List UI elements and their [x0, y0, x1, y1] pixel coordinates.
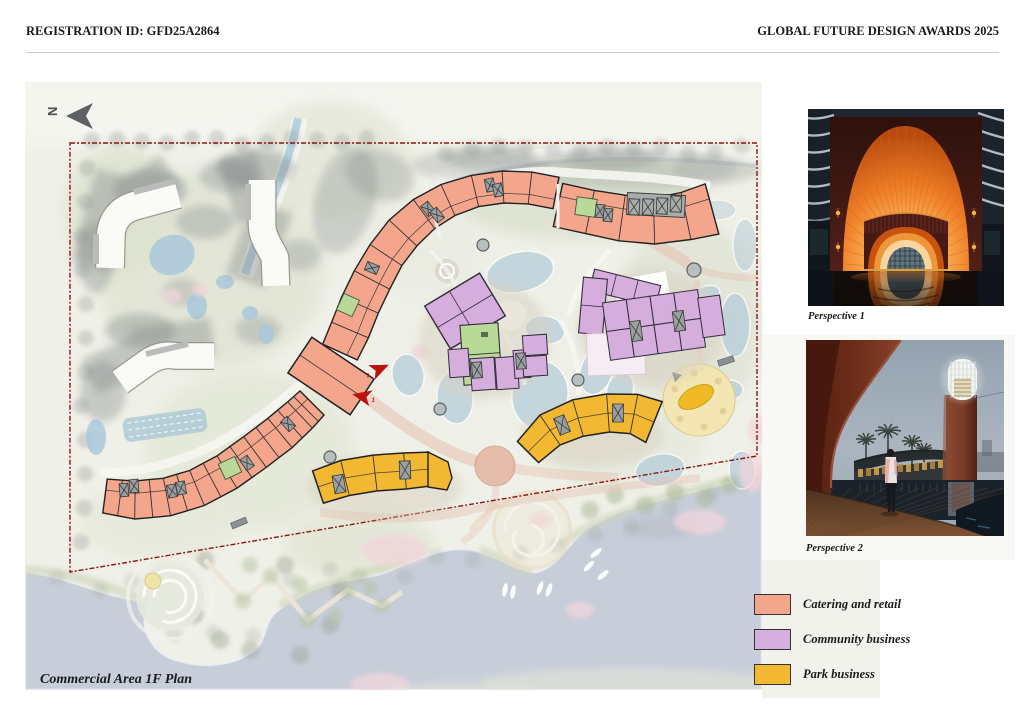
svg-text:N: N [45, 107, 60, 116]
